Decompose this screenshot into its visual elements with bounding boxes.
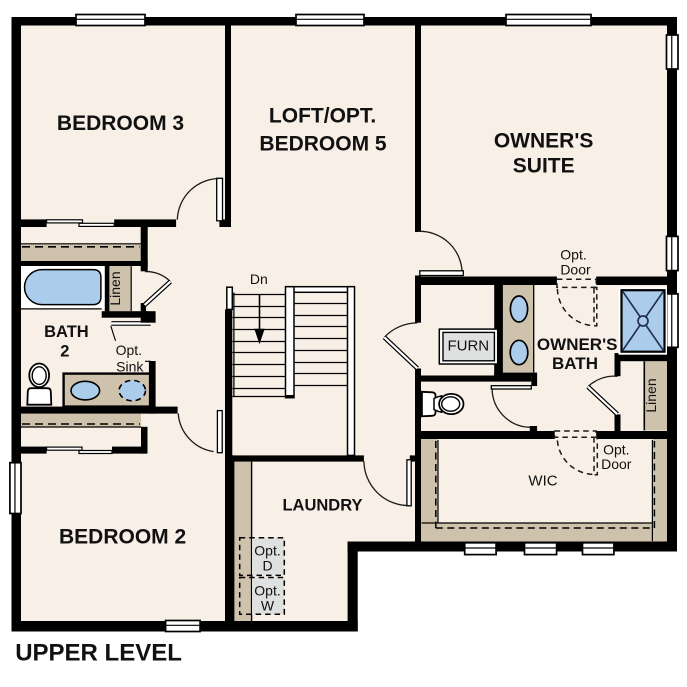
svg-text:LAUNDRY: LAUNDRY	[282, 497, 362, 515]
svg-text:OWNER'S: OWNER'S	[537, 335, 618, 354]
svg-text:BEDROOM 3: BEDROOM 3	[57, 112, 184, 135]
svg-text:Opt.: Opt.	[254, 543, 280, 559]
svg-text:Opt.: Opt.	[560, 247, 586, 263]
svg-text:Door: Door	[560, 262, 591, 278]
svg-text:OWNER'S: OWNER'S	[494, 129, 594, 152]
svg-text:Sink: Sink	[116, 359, 144, 375]
svg-text:Linen: Linen	[643, 378, 659, 412]
svg-text:UPPER LEVEL: UPPER LEVEL	[15, 640, 182, 667]
svg-text:2: 2	[60, 342, 69, 360]
svg-text:W: W	[261, 598, 275, 614]
svg-text:D: D	[262, 558, 272, 574]
svg-text:SUITE: SUITE	[513, 154, 575, 177]
svg-text:Opt.: Opt.	[254, 583, 280, 599]
svg-text:Linen: Linen	[107, 271, 123, 305]
svg-text:Door: Door	[601, 456, 632, 472]
svg-text:LOFT/OPT.: LOFT/OPT.	[269, 104, 376, 127]
svg-text:WIC: WIC	[528, 472, 557, 489]
svg-text:Dn: Dn	[250, 271, 268, 287]
svg-text:BATH: BATH	[552, 354, 598, 373]
svg-text:BATH: BATH	[44, 323, 89, 341]
svg-text:BEDROOM 5: BEDROOM 5	[259, 133, 387, 156]
svg-text:BEDROOM 2: BEDROOM 2	[59, 525, 186, 548]
svg-text:Opt.: Opt.	[116, 342, 142, 358]
svg-text:FURN: FURN	[447, 338, 489, 355]
